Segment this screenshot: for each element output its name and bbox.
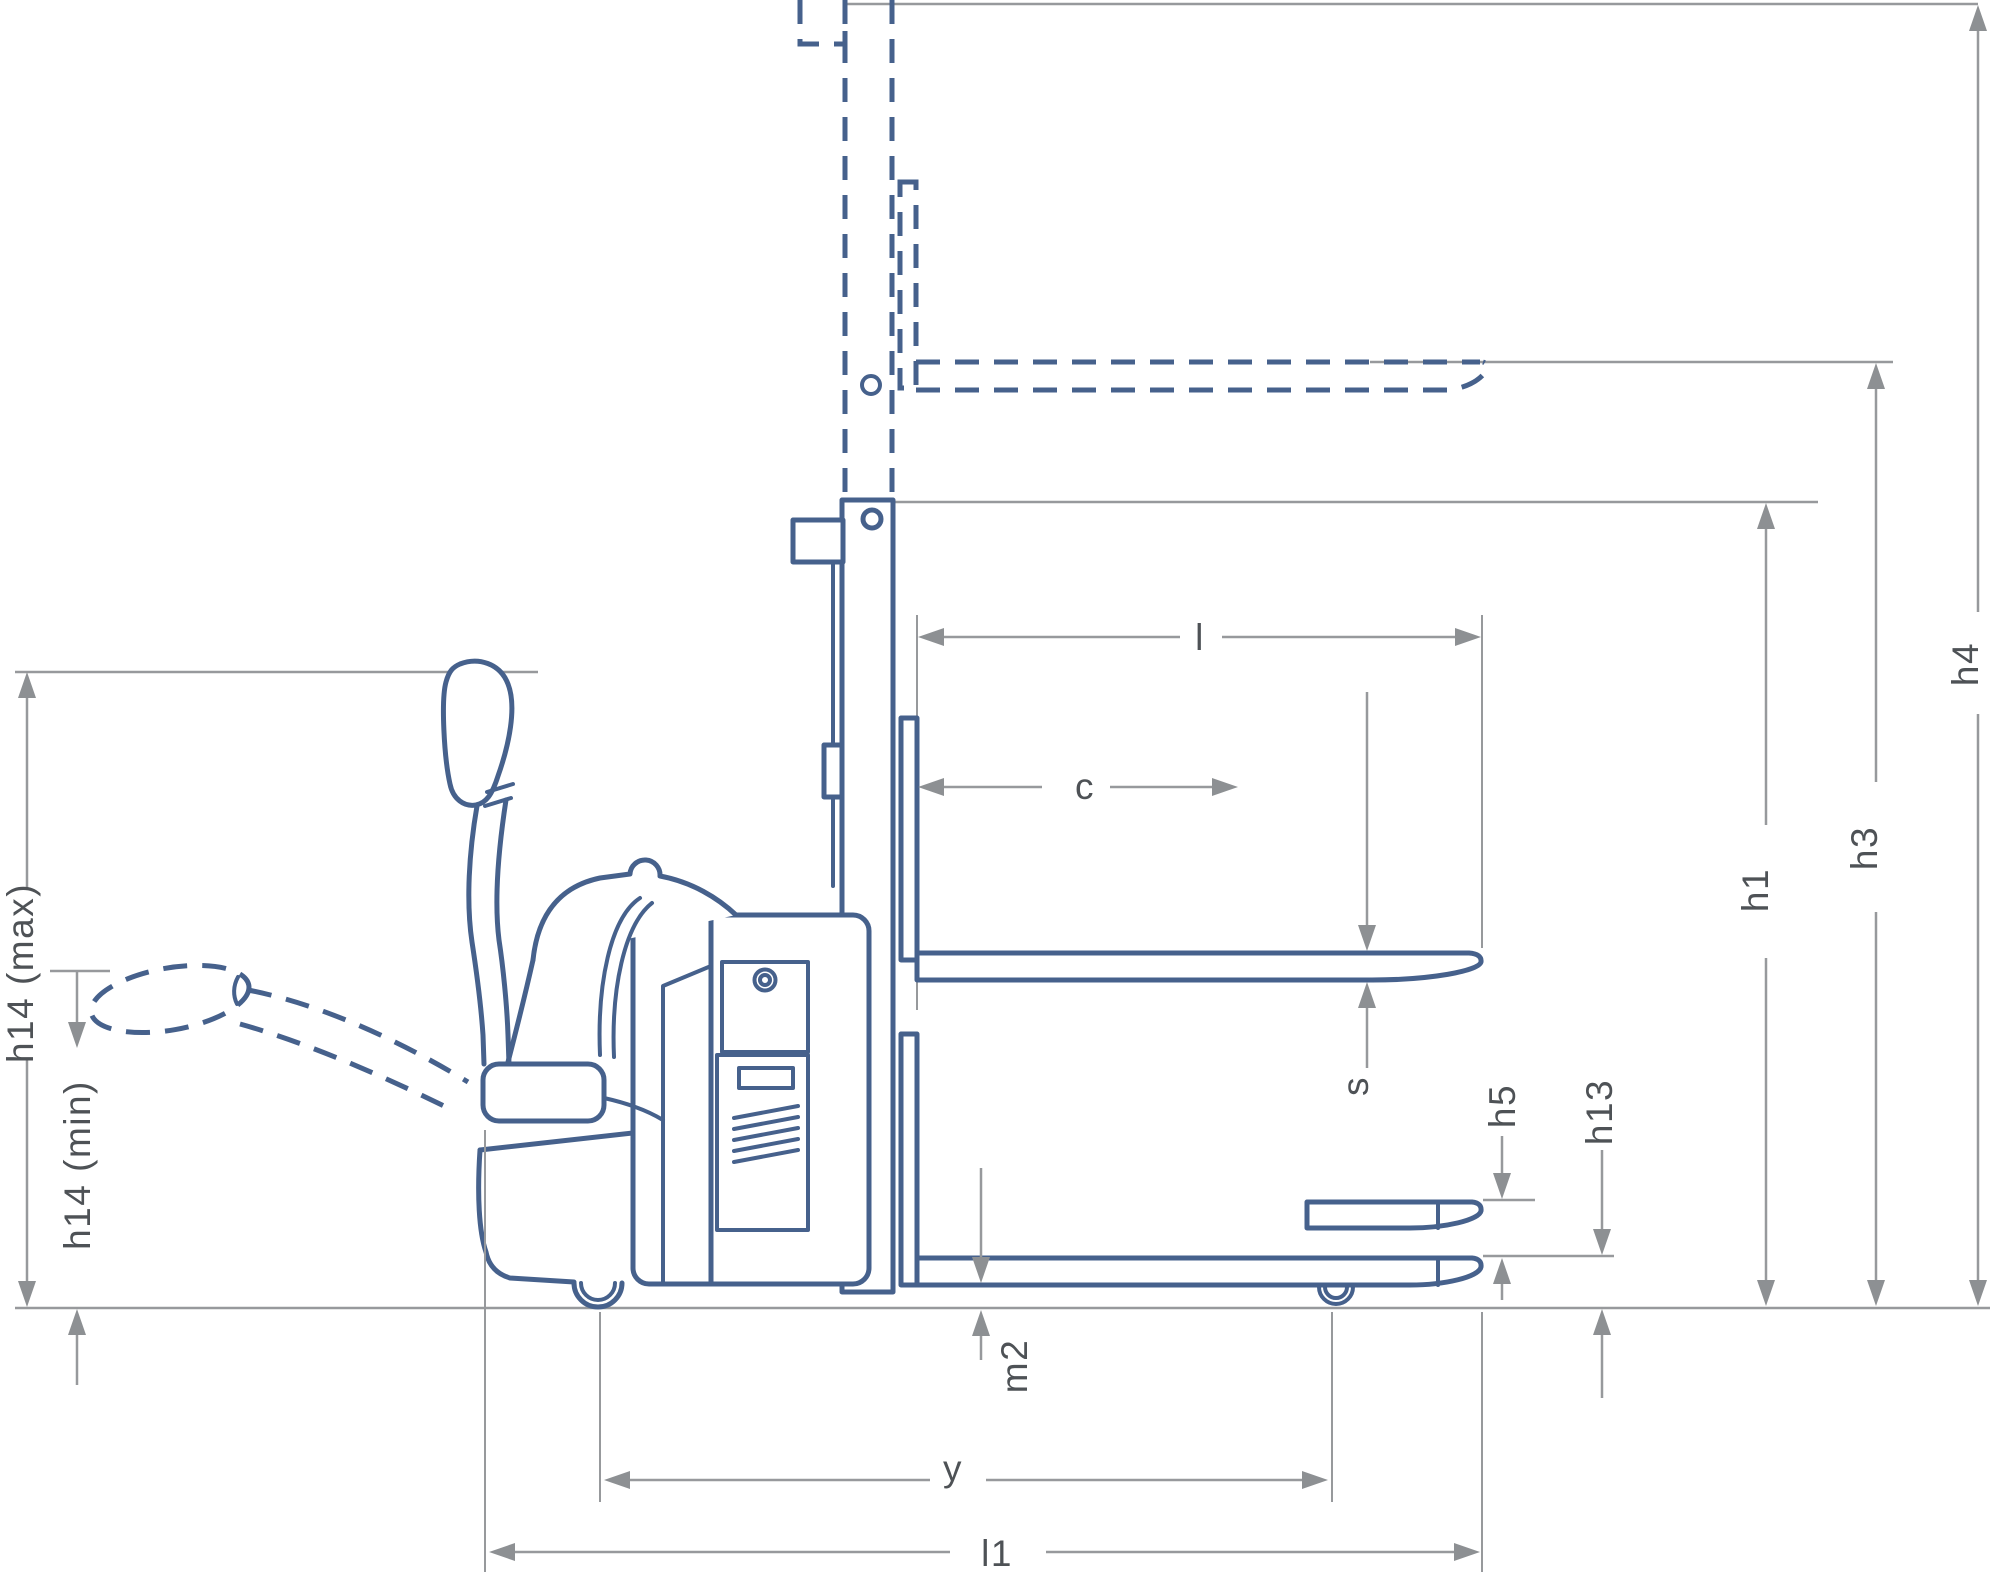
dimension-h14-max: h14 (max) bbox=[0, 672, 41, 1307]
lift-cylinder-block bbox=[824, 745, 842, 797]
cowl-rear-edge bbox=[508, 960, 533, 1062]
dimension-h5: h5 bbox=[1482, 1084, 1523, 1300]
dimension-s: s bbox=[1335, 692, 1376, 1096]
dimension-h3: h3 bbox=[1844, 363, 1885, 1306]
stacker-dimension-diagram: h14 (max) h14 (min) l c s h5 h13 bbox=[0, 0, 2000, 1575]
label-y: y bbox=[943, 1448, 963, 1489]
label-h5: h5 bbox=[1482, 1084, 1523, 1128]
support-arm-raised bbox=[1307, 1202, 1481, 1228]
fork-carriage-raised bbox=[900, 182, 916, 388]
fork-raised-bottom bbox=[916, 362, 1487, 390]
dimension-c: c bbox=[918, 766, 1238, 807]
tiller-grip-end-cap bbox=[234, 977, 238, 1004]
mast-pulley-raised bbox=[862, 376, 880, 394]
reference-lines bbox=[15, 4, 1990, 1308]
label-h14-min: h14 (min) bbox=[57, 1080, 98, 1250]
tiller-lowered-dashed bbox=[86, 955, 468, 1110]
label-l1: l1 bbox=[981, 1533, 1013, 1574]
label-h14-max: h14 (max) bbox=[0, 883, 41, 1063]
dimension-l: l bbox=[918, 617, 1481, 658]
tiller-shaft-lowered-bottom bbox=[240, 1024, 452, 1110]
support-arm-lowered bbox=[917, 1258, 1481, 1285]
diagram-canvas: h14 (max) h14 (min) l c s h5 h13 bbox=[0, 0, 2000, 1575]
dimension-h4: h4 bbox=[1945, 5, 1987, 1306]
tiller-grip-lowered bbox=[86, 955, 254, 1044]
tiller-shaft-left bbox=[469, 806, 484, 1064]
label-h1: h1 bbox=[1735, 868, 1776, 912]
tiller-arm-pad bbox=[483, 1064, 604, 1121]
label-l: l bbox=[1195, 617, 1205, 658]
chassis-rear-edge bbox=[479, 1150, 574, 1282]
tiller-shaft-right bbox=[497, 800, 509, 1064]
fork-raised bbox=[917, 953, 1481, 980]
fork-carriage-upper bbox=[901, 718, 917, 960]
mast-raised-dashed bbox=[800, 0, 1487, 500]
mast-pulley bbox=[863, 510, 881, 528]
machine-body bbox=[443, 500, 1481, 1307]
label-s: s bbox=[1335, 1076, 1376, 1096]
label-h13: h13 bbox=[1579, 1079, 1620, 1145]
label-h3: h3 bbox=[1844, 826, 1885, 870]
dimension-l1: l1 bbox=[489, 1533, 1480, 1574]
tiller-grip bbox=[443, 661, 511, 805]
load-wheel-inner bbox=[1325, 1287, 1347, 1298]
label-c: c bbox=[1075, 766, 1095, 807]
dimension-y: y bbox=[604, 1448, 1328, 1489]
dimension-h13: h13 bbox=[1579, 1079, 1620, 1398]
label-m2: m2 bbox=[994, 1339, 1035, 1393]
fork-carriage-lower bbox=[901, 1034, 917, 1285]
mast-mount-bracket bbox=[793, 520, 843, 562]
dimension-h14-min: h14 (min) bbox=[57, 971, 98, 1385]
dimension-h1: h1 bbox=[1735, 503, 1776, 1306]
label-h4: h4 bbox=[1945, 642, 1986, 686]
mast-raised-crosshead bbox=[800, 0, 845, 44]
